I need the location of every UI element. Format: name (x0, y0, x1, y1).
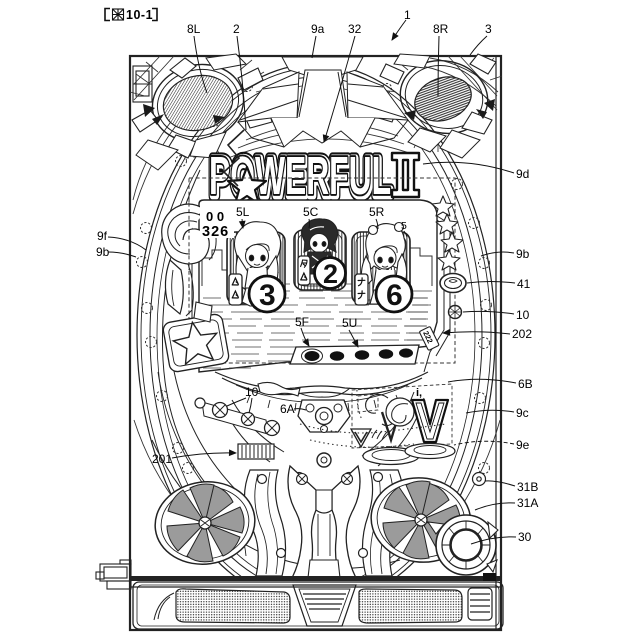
svg-text:2: 2 (233, 22, 240, 36)
svg-text:31A: 31A (517, 496, 538, 510)
svg-text:2: 2 (323, 259, 338, 289)
svg-text:8L: 8L (187, 22, 201, 36)
svg-text:30: 30 (518, 530, 532, 544)
svg-text:6A: 6A (280, 402, 295, 416)
svg-text:9b: 9b (96, 245, 110, 259)
svg-text:10-1: 10-1 (126, 8, 153, 22)
svg-text:1: 1 (404, 8, 411, 22)
svg-text:9a: 9a (311, 22, 325, 36)
svg-text:6B: 6B (518, 377, 533, 391)
svg-text:5L: 5L (236, 205, 250, 219)
svg-text:9f: 9f (97, 229, 108, 243)
svg-text:10: 10 (245, 385, 259, 399)
svg-text:9e: 9e (516, 438, 530, 452)
svg-text:5U: 5U (342, 316, 357, 330)
svg-text:i,: i, (416, 387, 422, 399)
svg-text:9d: 9d (516, 167, 529, 181)
svg-text:31B: 31B (517, 480, 538, 494)
svg-text:326: 326 (202, 224, 229, 240)
svg-text:41: 41 (517, 277, 531, 291)
svg-text:3: 3 (485, 22, 492, 36)
svg-text:8R: 8R (433, 22, 449, 36)
svg-text:9b: 9b (516, 247, 530, 261)
svg-text:5F: 5F (295, 315, 309, 329)
svg-text:201: 201 (152, 452, 172, 466)
svg-text:202: 202 (512, 327, 532, 341)
svg-text:6: 6 (386, 279, 403, 312)
svg-text:9c: 9c (516, 406, 529, 420)
svg-text:5C: 5C (303, 205, 319, 219)
svg-text:3: 3 (259, 279, 276, 312)
svg-text:32: 32 (348, 22, 362, 36)
svg-text:0 0: 0 0 (206, 209, 224, 224)
svg-text:5R: 5R (369, 205, 385, 219)
svg-text:5: 5 (401, 220, 407, 232)
svg-text:10: 10 (516, 308, 530, 322)
